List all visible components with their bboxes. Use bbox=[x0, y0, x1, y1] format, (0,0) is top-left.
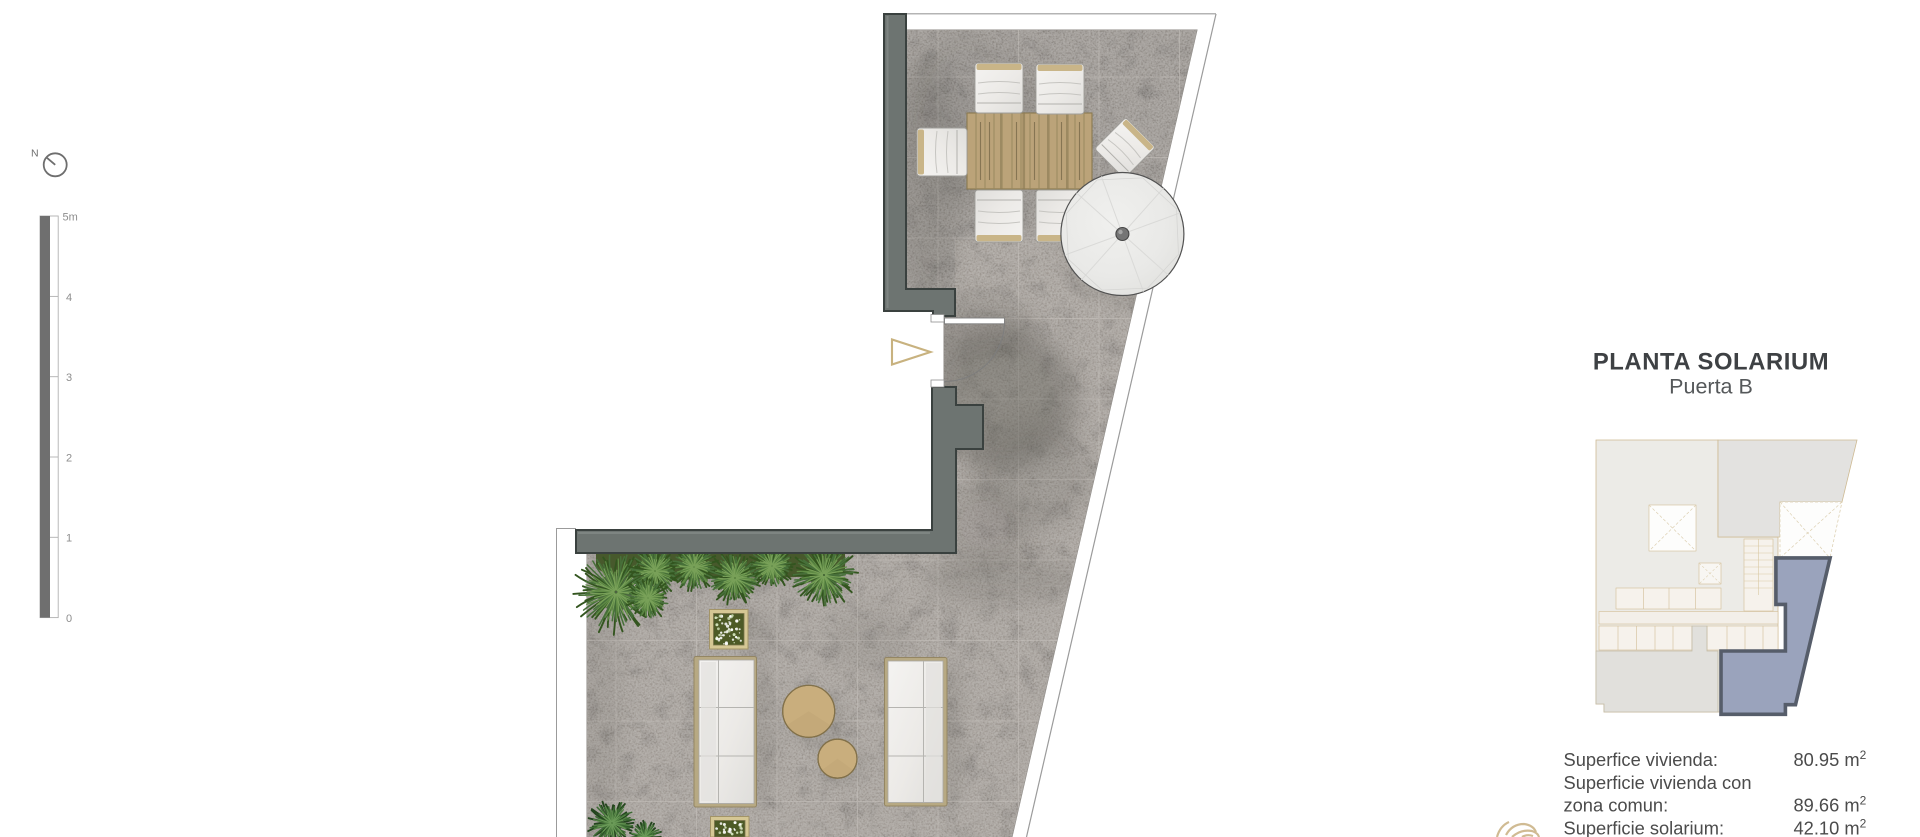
svg-text:4: 4 bbox=[66, 292, 72, 304]
svg-text:Superfice vivienda:: Superfice vivienda: bbox=[1564, 749, 1718, 770]
svg-text:2: 2 bbox=[66, 452, 72, 464]
svg-text:3: 3 bbox=[66, 372, 72, 384]
svg-text:89.66 m2: 89.66 m2 bbox=[1794, 794, 1867, 816]
svg-text:0: 0 bbox=[66, 613, 72, 625]
svg-text:zona comun:: zona comun: bbox=[1564, 795, 1669, 816]
svg-text:80.95 m2: 80.95 m2 bbox=[1794, 748, 1867, 770]
svg-text:N: N bbox=[31, 148, 39, 160]
svg-text:Puerta B: Puerta B bbox=[1669, 375, 1753, 399]
svg-text:42.10 m2: 42.10 m2 bbox=[1794, 816, 1867, 837]
svg-text:Superficie solarium:: Superficie solarium: bbox=[1564, 817, 1725, 837]
svg-text:PLANTA SOLARIUM: PLANTA SOLARIUM bbox=[1593, 349, 1829, 376]
svg-text:1: 1 bbox=[66, 533, 72, 545]
svg-text:5m: 5m bbox=[63, 212, 78, 224]
svg-text:Superficie vivienda con: Superficie vivienda con bbox=[1564, 772, 1752, 793]
